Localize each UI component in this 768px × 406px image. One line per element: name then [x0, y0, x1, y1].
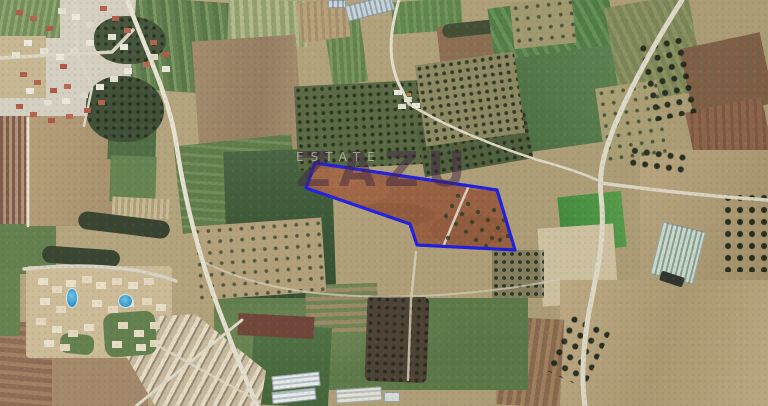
swimming-pool-right	[118, 294, 133, 308]
road-residential-horizontal	[0, 30, 133, 58]
track-below-parcel-vertical	[408, 252, 416, 380]
resort-lawn-a	[103, 310, 158, 358]
track-orchard-diagonal	[409, 104, 597, 180]
resort-lawn-b	[59, 332, 95, 355]
parcel-highlight	[300, 156, 515, 250]
road-branch-right	[601, 183, 768, 200]
farm-buildings	[0, 0, 8, 5]
road-top-center	[391, 0, 409, 104]
road-residential-vertical	[75, 0, 76, 54]
road-residential-loop	[78, 54, 92, 126]
road-resort-top	[24, 266, 176, 281]
swimming-pool-left	[66, 288, 78, 308]
farm-roof-orange	[407, 93, 411, 96]
satellite-image: ZAZU ESTATE	[0, 0, 768, 406]
greenhouse-bottom-shed	[384, 392, 400, 402]
road-main-right	[583, 0, 682, 406]
greenhouse-top-b	[328, 0, 346, 8]
track-south-of-parcel	[206, 263, 560, 297]
